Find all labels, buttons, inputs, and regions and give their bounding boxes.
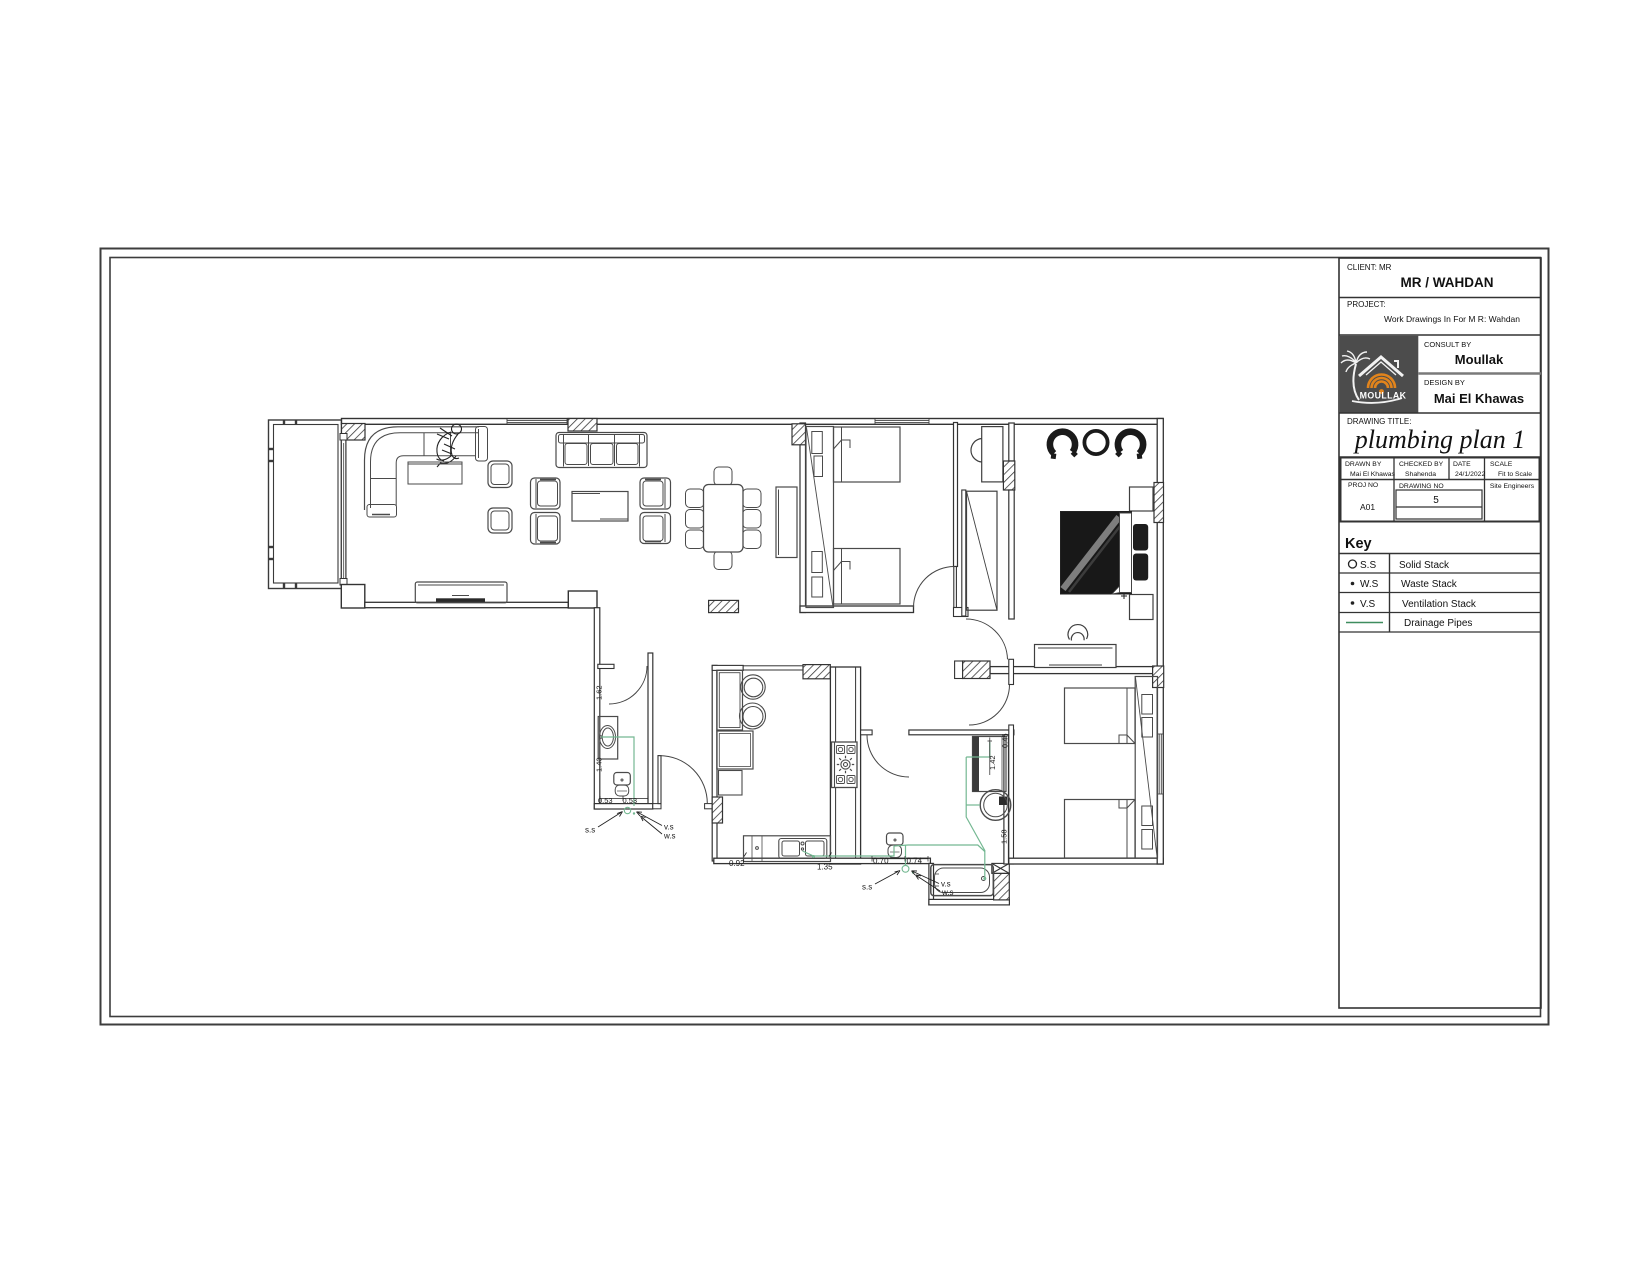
svg-text:S.S: S.S <box>1360 560 1376 571</box>
svg-text:0.92: 0.92 <box>729 859 745 868</box>
svg-text:w.s: w.s <box>663 832 676 841</box>
svg-text:w.s: w.s <box>941 888 954 897</box>
svg-text:Waste Stack: Waste Stack <box>1401 579 1458 590</box>
svg-text:Key: Key <box>1345 536 1372 552</box>
svg-text:W.S: W.S <box>1360 579 1379 590</box>
svg-text:PROJ NO: PROJ NO <box>1348 482 1378 489</box>
svg-text:s.s: s.s <box>585 826 595 835</box>
svg-text:1.62: 1.62 <box>595 685 604 700</box>
svg-text:MOULLAK: MOULLAK <box>1360 391 1407 401</box>
svg-text:Site Engineers: Site Engineers <box>1490 483 1535 490</box>
svg-text:PROJECT:: PROJECT: <box>1347 300 1386 309</box>
svg-text:Fit to Scale: Fit to Scale <box>1498 471 1532 478</box>
svg-text:0.53: 0.53 <box>623 796 638 805</box>
svg-text:A01: A01 <box>1360 502 1375 512</box>
svg-text:CHECKED BY: CHECKED BY <box>1399 461 1444 468</box>
svg-text:Ventilation Stack: Ventilation Stack <box>1402 599 1477 610</box>
svg-text:MR / WAHDAN: MR / WAHDAN <box>1401 275 1494 290</box>
svg-text:0.45: 0.45 <box>1001 733 1010 748</box>
svg-text:SCALE: SCALE <box>1490 461 1513 468</box>
svg-text:24/1/2022: 24/1/2022 <box>1455 471 1485 478</box>
svg-text:DRAWING NO: DRAWING NO <box>1399 483 1444 490</box>
svg-text:5: 5 <box>1433 495 1439 506</box>
svg-text:plumbing plan 1: plumbing plan 1 <box>1353 425 1525 454</box>
svg-text:Shahenda: Shahenda <box>1405 471 1436 478</box>
svg-text:1.58: 1.58 <box>1000 829 1009 844</box>
svg-text:Drainage Pipes: Drainage Pipes <box>1404 618 1472 629</box>
svg-text:DATE: DATE <box>1453 461 1471 468</box>
svg-text:DESIGN BY: DESIGN BY <box>1424 378 1465 387</box>
svg-text:0.74: 0.74 <box>907 857 923 866</box>
svg-text:Work Drawings In For M R: Wahd: Work Drawings In For M R: Wahdan <box>1384 314 1520 324</box>
svg-text:DRAWN BY: DRAWN BY <box>1345 461 1382 468</box>
svg-text:1.35: 1.35 <box>817 863 833 872</box>
svg-text:0.70: 0.70 <box>873 857 889 866</box>
svg-text:CLIENT: MR: CLIENT: MR <box>1347 263 1392 272</box>
svg-text:1.40: 1.40 <box>595 757 604 772</box>
svg-text:CONSULT BY: CONSULT BY <box>1424 340 1471 349</box>
svg-text:Solid Stack: Solid Stack <box>1399 560 1450 571</box>
svg-text:1.42: 1.42 <box>988 755 997 770</box>
svg-text:Mai El Khawas: Mai El Khawas <box>1350 471 1396 478</box>
svg-text:V.S: V.S <box>1360 599 1376 610</box>
svg-text:s.s: s.s <box>862 883 872 892</box>
svg-text:v.s: v.s <box>664 823 674 832</box>
svg-text:Moullak: Moullak <box>1455 352 1504 367</box>
svg-text:Mai El Khawas: Mai El Khawas <box>1434 391 1524 406</box>
